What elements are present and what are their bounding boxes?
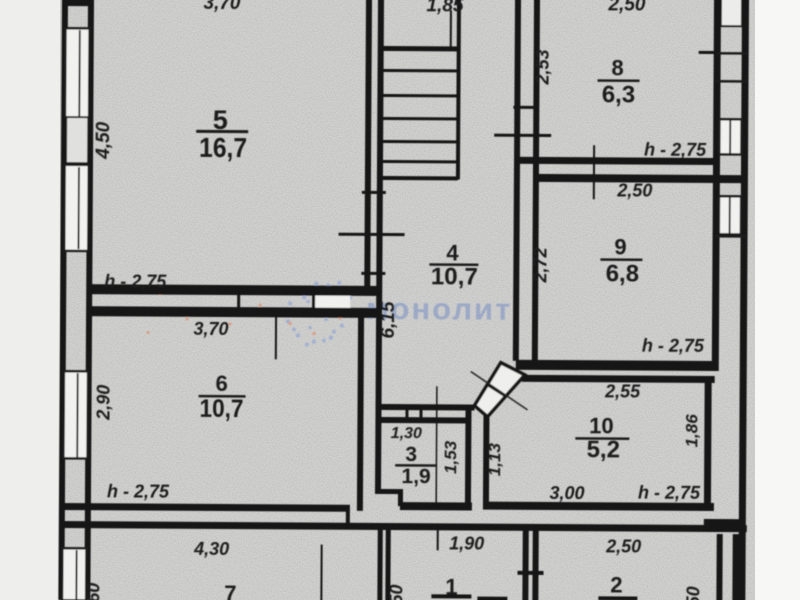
svg-text:2,72: 2,72 <box>530 247 550 283</box>
svg-text:9: 9 <box>614 234 626 259</box>
svg-text:h - 2,75: h - 2,75 <box>644 140 707 160</box>
svg-text:1,50: 1,50 <box>386 584 406 600</box>
svg-text:10: 10 <box>589 413 614 438</box>
svg-text:2,50: 2,50 <box>683 586 703 600</box>
svg-text:1,13: 1,13 <box>485 443 504 477</box>
svg-text:4,30: 4,30 <box>193 539 229 559</box>
svg-text:6,3: 6,3 <box>602 81 636 108</box>
svg-text:h - 2,75: h - 2,75 <box>107 481 170 501</box>
svg-text:1,86: 1,86 <box>682 414 701 448</box>
svg-text:2: 2 <box>610 572 622 597</box>
svg-text:2,50: 2,50 <box>616 180 652 200</box>
svg-text:h - 2,75: h - 2,75 <box>104 271 167 291</box>
svg-text:3,00: 3,00 <box>549 483 584 503</box>
svg-text:3,70: 3,70 <box>203 0 241 14</box>
svg-text:2,50: 2,50 <box>605 536 641 556</box>
svg-text:4,50: 4,50 <box>93 121 114 160</box>
svg-text:7: 7 <box>224 581 236 600</box>
svg-text:6,15: 6,15 <box>378 301 399 339</box>
svg-text:h - 2,75: h - 2,75 <box>638 483 701 503</box>
svg-text:8: 8 <box>611 55 623 80</box>
svg-text:16,7: 16,7 <box>199 132 247 163</box>
svg-text:3: 3 <box>405 443 417 466</box>
svg-text:2,55: 2,55 <box>604 381 641 401</box>
svg-text:4: 4 <box>446 240 459 265</box>
svg-text:1: 1 <box>445 574 457 599</box>
svg-text:10,7: 10,7 <box>199 395 243 423</box>
svg-text:5,2: 5,2 <box>586 436 620 463</box>
svg-text:6: 6 <box>215 371 227 396</box>
svg-text:1,90: 1,90 <box>449 533 484 553</box>
svg-text:6,8: 6,8 <box>606 260 640 287</box>
svg-text:1,53: 1,53 <box>441 440 460 474</box>
svg-text:1,30: 1,30 <box>391 425 422 442</box>
svg-text:10,7: 10,7 <box>431 263 478 290</box>
svg-text:1,85: 1,85 <box>426 0 464 16</box>
svg-text:2,90: 2,90 <box>93 385 113 421</box>
svg-text:h - 2,75: h - 2,75 <box>642 336 705 356</box>
svg-text:2,60: 2,60 <box>83 583 103 600</box>
svg-text:2,50: 2,50 <box>607 0 646 16</box>
svg-text:3,70: 3,70 <box>193 319 228 339</box>
svg-text:2,53: 2,53 <box>532 49 552 85</box>
svg-text:1,9: 1,9 <box>401 465 430 488</box>
